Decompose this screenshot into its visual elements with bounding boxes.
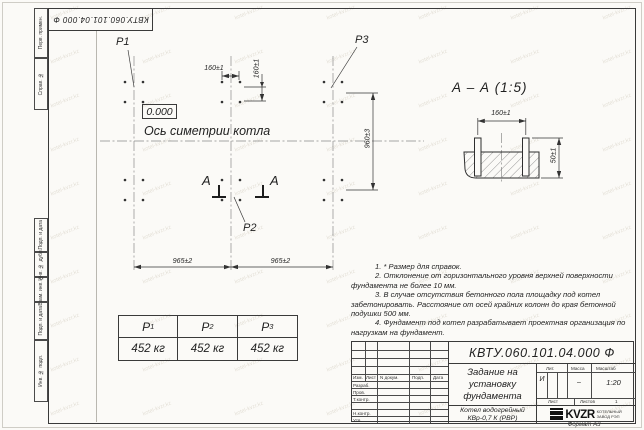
loads-table-value-p2: 452 кг (178, 338, 237, 360)
kvzr-logo-icon (550, 408, 563, 421)
section-view (464, 118, 563, 178)
tb-sheet-label: Лист (548, 399, 558, 404)
kvzr-logo-caption: КОТЕЛЬНЫЙ ЗАВОД РЭП (597, 410, 622, 419)
tb-massa-label: Масса (571, 366, 585, 371)
tb-company-cell: KVZR КОТЕЛЬНЫЙ ЗАВОД РЭП (536, 405, 635, 423)
tb-row-razrab: Разраб. (353, 383, 370, 388)
dim-section-50: 50±1 (551, 138, 558, 174)
centerlines (100, 56, 502, 272)
point-label-p1: P1 (116, 36, 129, 48)
loads-table-value-p3: 452 кг (238, 338, 297, 360)
tb-doc-number: КВТУ.060.101.04.000 Ф (448, 342, 635, 364)
note-1: 1. * Размер для справок. (351, 262, 632, 271)
loads-table: P1 P2 P3 452 кг 452 кг 452 кг (118, 315, 298, 361)
tb-header-izm: Изм. (353, 375, 363, 380)
plan-dimensions (134, 71, 378, 267)
note-2: 2. Отклонение от горизонтального уровня … (351, 271, 632, 290)
section-title: А – А (1:5) (452, 80, 528, 95)
dim-965-right: 965±2 (258, 258, 303, 265)
title-block: Изм. Лист N докум. Подп. Дата Разраб. Пр… (351, 341, 634, 422)
tb-lit-label: Лит. (546, 366, 554, 371)
tb-sheets-value: 1 (615, 399, 618, 404)
axis-of-symmetry-label: Ось симетрии котла (144, 124, 270, 138)
format-label: Формат А3 (552, 422, 616, 428)
note-4: 4. Фундамент под котел разрабатывает про… (351, 318, 632, 337)
dim-section-160: 160±1 (483, 110, 519, 117)
point-label-p3: P3 (355, 34, 368, 46)
notes-block: 1. * Размер для справок. 2. Отклонение о… (351, 262, 632, 337)
drawing-sheet: kotel-kvzr.kzkotel-kvzr.kzkotel-kvzr.kzk… (0, 0, 644, 430)
tb-sheets-label: Листов (580, 399, 595, 404)
tb-header-dokum: N докум. (380, 375, 399, 380)
note-3: 3. В случае отсутствия бетонного пола пл… (351, 290, 632, 318)
loads-table-header-p3: P3 (238, 316, 297, 338)
tb-lit-value: И (537, 376, 547, 383)
section-letter-right: А (270, 173, 279, 188)
tb-doc-title: Задание на установку фундамента (448, 364, 536, 405)
kvzr-logo-text: KVZR (565, 409, 594, 421)
loads-table-value-p1: 452 кг (119, 338, 178, 360)
tb-scale-value: 1:20 (591, 378, 636, 387)
tb-massa-value: – (567, 379, 591, 386)
tb-scale-label: Масштаб (596, 366, 616, 371)
tb-row-prov: Пров. (353, 390, 365, 395)
tb-header-podp: Подп. (412, 375, 424, 380)
tb-product-name: Котел водогрейный КВр-0,7 К (РВР) (448, 405, 536, 423)
tb-header-data: Дата (433, 375, 443, 380)
loads-table-header-p2: P2 (178, 316, 237, 338)
loads-table-header-p1: P1 (119, 316, 178, 338)
point-label-p2: P2 (243, 222, 256, 234)
elevation-marker: 0.000 (142, 104, 177, 119)
section-letter-left: А (202, 173, 211, 188)
dim-160-vertical: 160±1 (254, 51, 261, 87)
tb-row-tkontr: Т.контр. (353, 397, 370, 402)
tb-row-nkontr: Н.контр. (353, 411, 371, 416)
section-cut-marks (212, 185, 269, 198)
tb-row-utv: Утв. (353, 418, 362, 423)
elevation-value: 0.000 (146, 106, 172, 118)
tb-lit-grid: Лит. Масса Масштаб И – 1:20 Лист Листов … (536, 364, 635, 405)
dim-160-horizontal: 160±1 (196, 65, 232, 72)
tb-header-list: Лист (366, 375, 376, 380)
dim-960: 960±3 (365, 116, 372, 162)
dim-965-left: 965±2 (160, 258, 205, 265)
